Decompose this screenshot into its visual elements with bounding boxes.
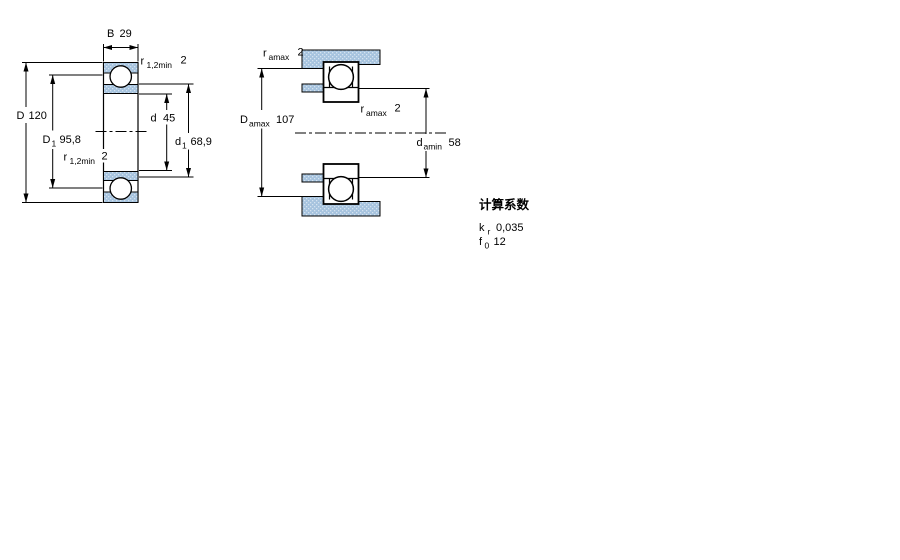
arrowhead-up-icon [259, 69, 264, 78]
dim-subscript: amax [366, 108, 388, 118]
dim-symbol: d [175, 136, 181, 148]
ball-bottom [110, 178, 131, 199]
calculation-factors-block: 计算系数 k r 0,035 f 0 12 [479, 197, 530, 251]
factor-row-f0: f 0 12 [479, 236, 506, 251]
arrowhead-down-icon [24, 194, 29, 203]
factor-subscript: 0 [485, 241, 490, 251]
dim-value: 2 [181, 55, 187, 67]
dim-symbol: r [361, 104, 365, 116]
arrowhead-right-icon [130, 45, 139, 50]
dim-symbol: r [263, 48, 267, 60]
label-D: D 120 [17, 110, 47, 122]
factor-symbol: f [479, 236, 483, 248]
dim-value: 45 [163, 113, 175, 125]
dim-line-d [139, 94, 172, 171]
arrowhead-down-icon [164, 162, 169, 171]
dim-symbol: r [141, 56, 145, 68]
arrowhead-left-icon [104, 45, 113, 50]
dim-value: 2 [298, 47, 304, 59]
label-d: d 45 [151, 113, 176, 125]
label-r12min-bottom: r 1,2min 2 [64, 151, 108, 167]
arrowhead-up-icon [50, 75, 55, 84]
dim-symbol: d [417, 137, 423, 149]
arrowhead-up-icon [164, 94, 169, 103]
dim-value: 2 [102, 151, 108, 163]
dim-value: 107 [276, 114, 294, 126]
dim-subscript: amin [424, 142, 443, 152]
dim-subscript: 1 [52, 139, 57, 149]
arrowhead-up-icon [424, 89, 429, 98]
dim-symbol: D [240, 114, 248, 126]
drawing-canvas: B 29 r 1,2min 2 D 120 D 1 95,8 r 1,2min … [0, 0, 900, 560]
dim-subscript: 1,2min [147, 60, 173, 70]
left-bearing-cross-section [96, 63, 147, 203]
dim-subscript: 1 [182, 141, 187, 151]
dim-symbol: d [151, 113, 157, 125]
shaft-shoulder-top-section [302, 84, 324, 92]
dim-symbol: r [64, 152, 68, 164]
ball-top [110, 66, 131, 87]
bearing-bottom-half [324, 164, 359, 204]
label-ramax-mid: r amax 2 [361, 103, 401, 119]
shaft-shoulder-bottom-section [302, 174, 324, 182]
dim-value: 95,8 [60, 134, 81, 146]
dim-symbol: D [43, 134, 51, 146]
arrowhead-up-icon [186, 84, 191, 93]
dim-line-Damax [258, 69, 303, 197]
factor-symbol: k [479, 222, 485, 234]
factor-value: 0,035 [496, 222, 524, 234]
arrowhead-down-icon [186, 168, 191, 177]
arrowhead-down-icon [259, 188, 264, 197]
label-r12min-top: r 1,2min 2 [141, 55, 187, 71]
dim-subscript: 1,2min [70, 156, 96, 166]
arrowhead-down-icon [424, 169, 429, 178]
arrowhead-down-icon [50, 179, 55, 188]
bearing-top-half [324, 62, 359, 102]
label-ramax-top: r amax 2 [263, 47, 304, 63]
arrowhead-up-icon [24, 63, 29, 72]
ball-bottom [329, 177, 354, 202]
dim-symbol: D [17, 110, 25, 122]
factor-value: 12 [494, 236, 506, 248]
dim-symbol: B [107, 28, 114, 40]
factor-row-kr: k r 0,035 [479, 222, 524, 237]
factor-subscript: r [488, 227, 491, 237]
dim-value: 68,9 [191, 136, 212, 148]
dim-value: 58 [449, 137, 461, 149]
bearing-dimension-drawing: B 29 r 1,2min 2 D 120 D 1 95,8 r 1,2min … [0, 0, 900, 560]
dim-subscript: amax [269, 52, 291, 62]
label-B: B 29 [107, 28, 132, 40]
dim-value: 120 [29, 110, 47, 122]
dim-value: 2 [395, 103, 401, 115]
calculation-factors-heading: 计算系数 [479, 197, 530, 212]
dim-value: 29 [120, 28, 132, 40]
dim-subscript: amax [249, 119, 271, 129]
ball-top [329, 65, 354, 90]
